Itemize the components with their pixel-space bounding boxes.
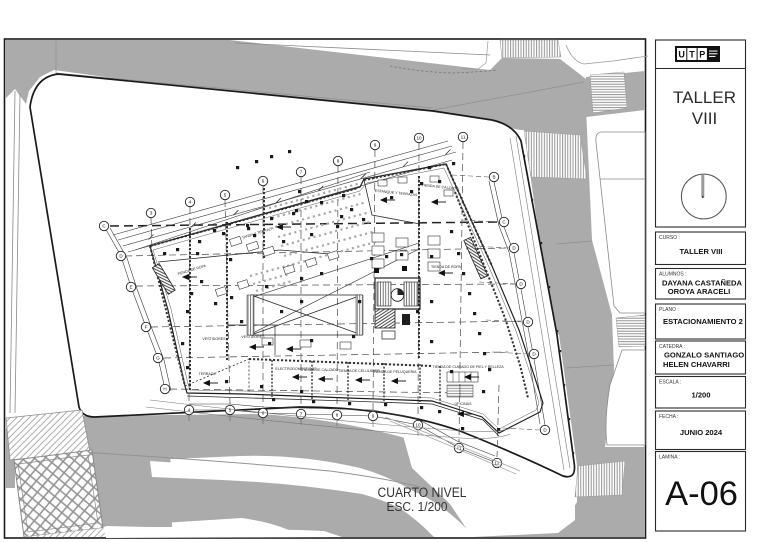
svg-text:T: T bbox=[689, 50, 695, 60]
svg-text:F: F bbox=[145, 325, 148, 330]
svg-text:TIENDA DE ROPA: TIENDA DE ROPA bbox=[431, 265, 461, 269]
svg-text:8: 8 bbox=[336, 413, 339, 418]
svg-text:8: 8 bbox=[337, 159, 340, 164]
svg-text:TERRAZA: TERRAZA bbox=[199, 372, 216, 376]
svg-text:A-06: A-06 bbox=[665, 475, 738, 513]
svg-text:H: H bbox=[163, 387, 166, 392]
svg-text:7: 7 bbox=[300, 170, 303, 175]
svg-text:7: 7 bbox=[300, 412, 303, 417]
svg-text:3: 3 bbox=[150, 211, 153, 216]
svg-text:TALLER VIII: TALLER VIII bbox=[680, 247, 723, 256]
svg-text:U: U bbox=[678, 50, 685, 60]
svg-text:HELEN CHAVARRI: HELEN CHAVARRI bbox=[663, 360, 730, 369]
svg-text:OFICINAS: OFICINAS bbox=[455, 402, 473, 406]
svg-text:PLANO :: PLANO : bbox=[659, 307, 679, 313]
svg-text:VESTIDORES: VESTIDORES bbox=[241, 335, 265, 339]
svg-text:TIENDA DE CALZADO: TIENDA DE CALZADO bbox=[302, 368, 339, 372]
svg-text:FECHA :: FECHA : bbox=[659, 414, 678, 420]
svg-text:10: 10 bbox=[415, 423, 421, 428]
svg-text:CUARTO NIVEL: CUARTO NIVEL bbox=[378, 485, 467, 501]
svg-text:ESCALA :: ESCALA : bbox=[659, 380, 681, 386]
svg-text:5: 5 bbox=[229, 408, 232, 413]
svg-text:E: E bbox=[129, 285, 132, 290]
svg-text:VIII: VIII bbox=[692, 109, 718, 128]
svg-text:P: P bbox=[699, 50, 705, 60]
svg-text:LAMINA :: LAMINA : bbox=[659, 455, 680, 461]
svg-text:ESC. 1/200: ESC. 1/200 bbox=[387, 500, 448, 514]
svg-text:ESTACIONAMIENTO 2: ESTACIONAMIENTO 2 bbox=[663, 317, 743, 326]
svg-text:CURSO :: CURSO : bbox=[659, 235, 680, 241]
svg-text:9: 9 bbox=[372, 414, 375, 419]
svg-text:6: 6 bbox=[262, 411, 265, 416]
svg-text:TALLER: TALLER bbox=[673, 88, 736, 107]
svg-text:B: B bbox=[492, 175, 495, 180]
svg-text:TIENDA DE CUIDADO DE PIEL Y BE: TIENDA DE CUIDADO DE PIEL Y BELLEZA bbox=[432, 365, 504, 369]
svg-text:1/200: 1/200 bbox=[691, 391, 710, 400]
svg-text:GONZALO SANTIAGO: GONZALO SANTIAGO bbox=[664, 351, 744, 360]
svg-text:JUNIO 2024: JUNIO 2024 bbox=[680, 428, 723, 437]
svg-text:5: 5 bbox=[224, 193, 227, 198]
svg-text:TIENDA DE PELUQUERIA: TIENDA DE PELUQUERIA bbox=[373, 370, 417, 374]
svg-text:OROYA ARACELI: OROYA ARACELI bbox=[668, 287, 730, 296]
svg-text:ALUMNOS :: ALUMNOS : bbox=[659, 272, 687, 278]
svg-text:4: 4 bbox=[189, 200, 192, 205]
svg-text:10: 10 bbox=[416, 136, 422, 141]
svg-text:G: G bbox=[156, 356, 160, 361]
svg-text:CATEDRA :: CATEDRA : bbox=[659, 344, 685, 350]
svg-text:9: 9 bbox=[374, 143, 377, 148]
svg-text:6: 6 bbox=[262, 179, 265, 184]
svg-text:11: 11 bbox=[461, 135, 466, 140]
svg-text:VESTIDORES: VESTIDORES bbox=[202, 337, 226, 341]
